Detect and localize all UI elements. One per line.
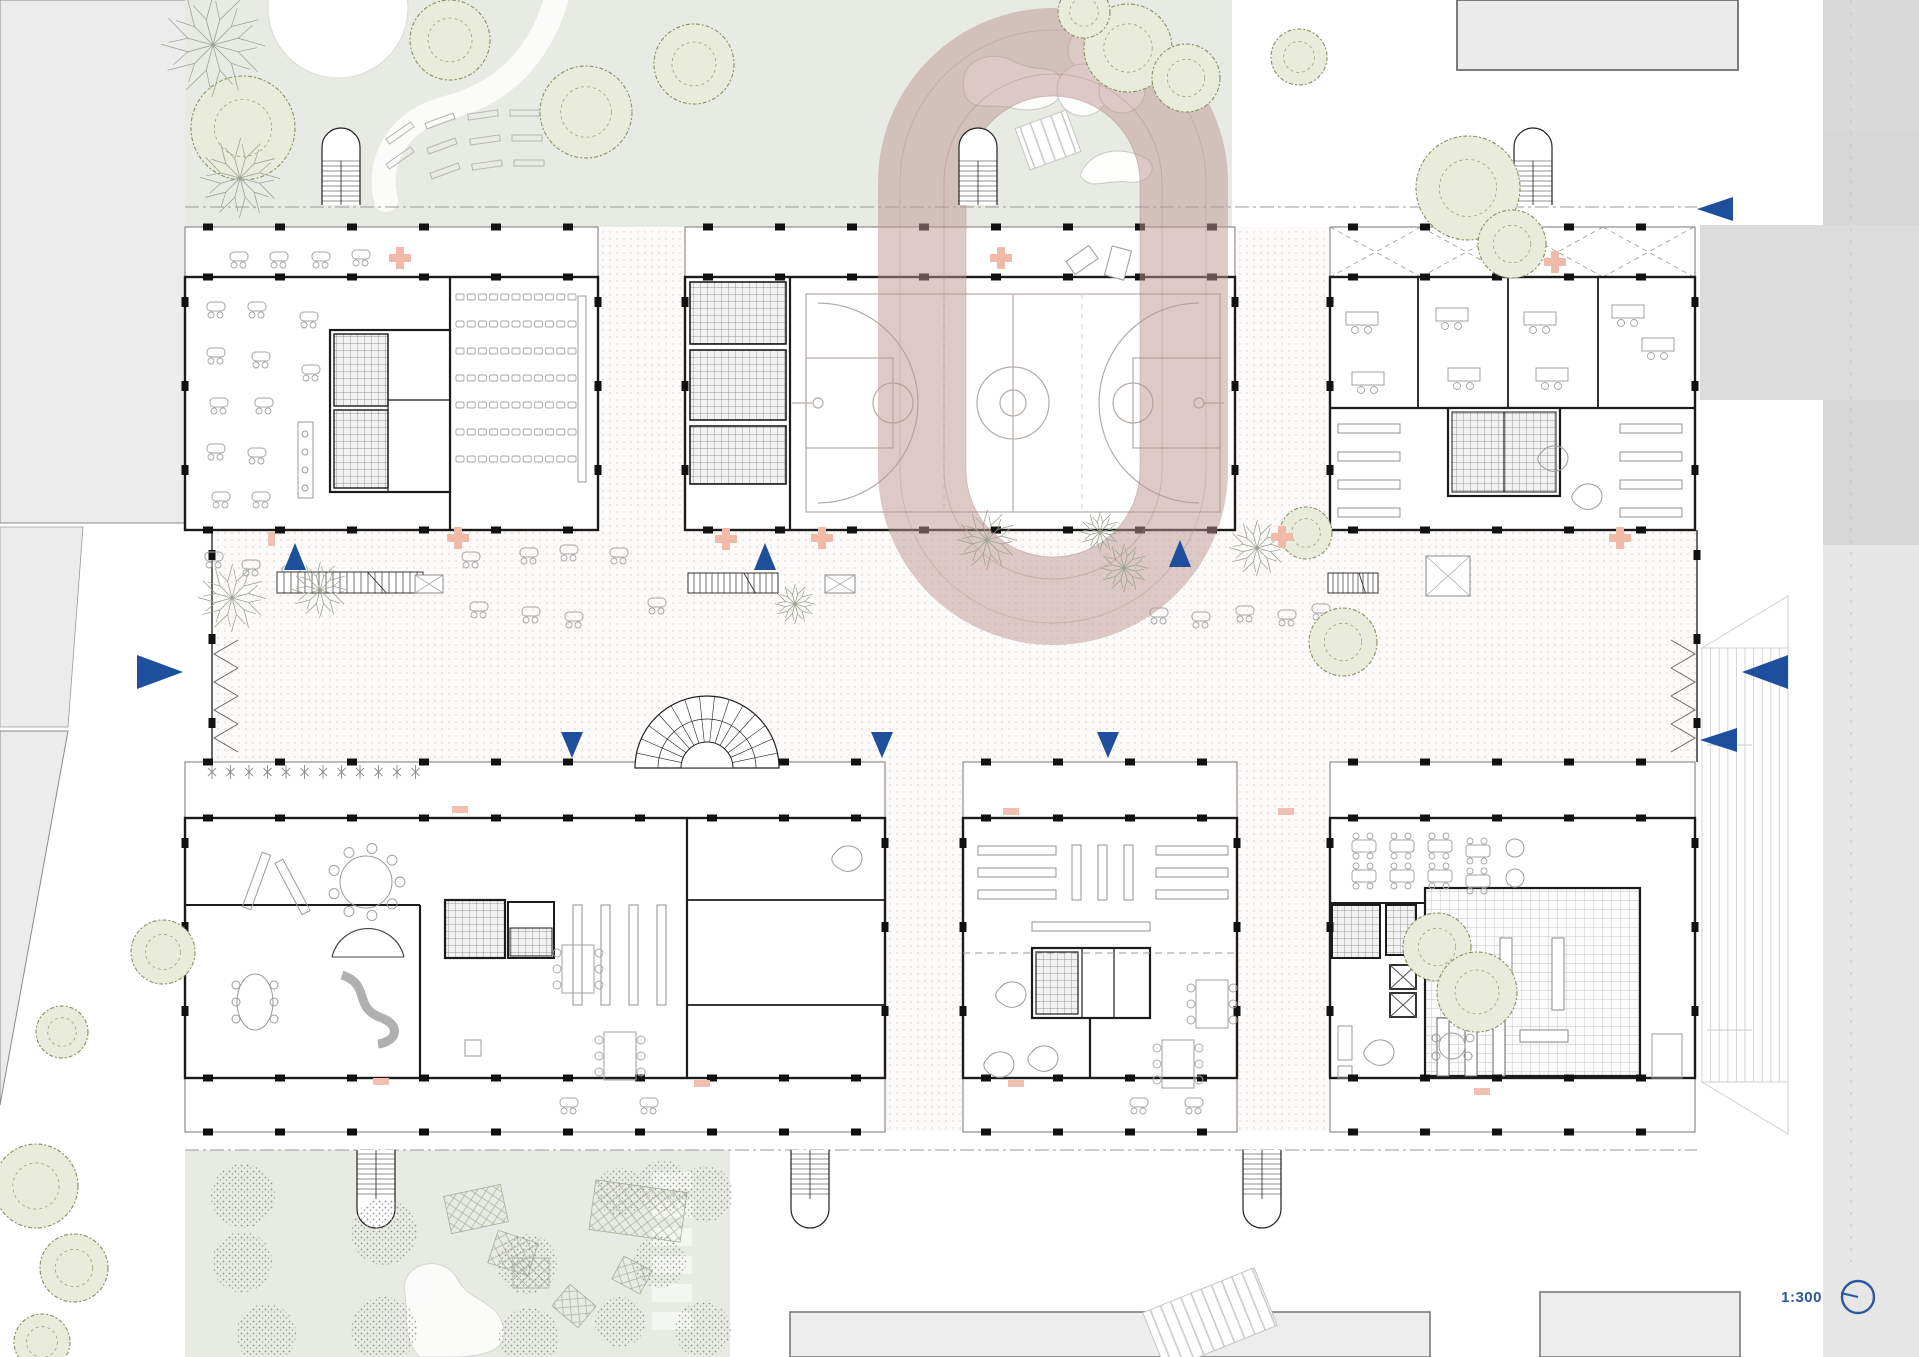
entrance-arrow <box>1697 197 1733 221</box>
entrance-arrow <box>137 655 183 689</box>
scale-label: 1:300 <box>1748 1289 1822 1306</box>
entrance-arrow <box>1700 728 1737 752</box>
entrance-arrow <box>1742 655 1788 689</box>
floor-plan-canvas: 1:300 <box>0 0 1919 1357</box>
site-plan-drawing <box>0 0 1919 1357</box>
